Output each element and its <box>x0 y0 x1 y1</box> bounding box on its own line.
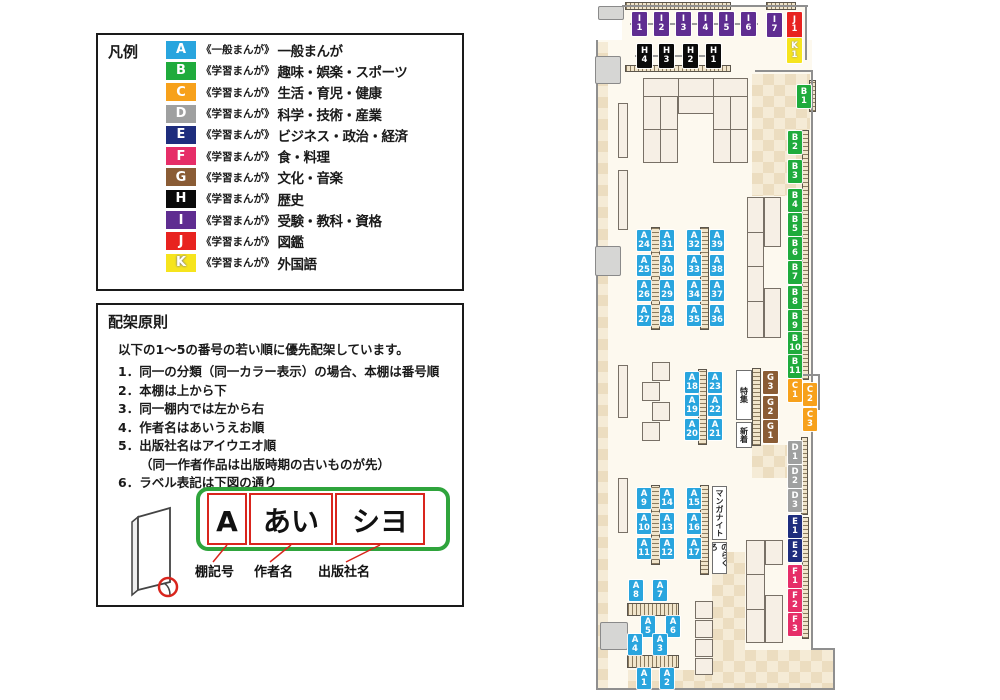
shelf-label-B10: B10 <box>788 332 802 355</box>
shelf-label-A6: A6 <box>666 616 680 637</box>
shelf-label-H1: H1 <box>706 44 721 68</box>
shelf-label-A14: A14 <box>660 488 674 509</box>
shelf-label-A32: A32 <box>687 230 701 251</box>
shelf-label-G3: G3 <box>763 371 778 394</box>
shelf-label-A26: A26 <box>637 280 651 301</box>
shelf-label-K1: K1 <box>787 38 802 63</box>
shelf-label-A29: A29 <box>660 280 674 301</box>
shelf-label-A35: A35 <box>687 305 701 326</box>
wall-top <box>622 5 808 7</box>
shelf-label-A31: A31 <box>660 230 674 251</box>
shelf-label-A30: A30 <box>660 255 674 276</box>
shelf-label-A11: A11 <box>637 538 651 559</box>
wall-c2-bracket-v <box>818 374 820 410</box>
shelf-label-C1: C1 <box>788 379 802 402</box>
shelf-label-A37: A37 <box>710 280 724 301</box>
shelf-label-A9: A9 <box>637 488 651 509</box>
shelf-label-I7: I7 <box>767 13 782 37</box>
shelf-strip-a7a8 <box>627 603 679 616</box>
shelf-label-A15: A15 <box>687 488 701 509</box>
shelf-label-D3: D3 <box>788 489 802 512</box>
door-upper-left <box>595 56 621 84</box>
shelf-label-H2: H2 <box>683 44 698 68</box>
shelf-label-A33: A33 <box>687 255 701 276</box>
shelf-strip-a18 <box>698 369 707 445</box>
map-annotation-新着: 新着 <box>736 422 752 448</box>
wall-bottom-right-h <box>811 648 835 650</box>
shelf-strip-a24 <box>651 227 660 330</box>
shelf-label-B2: B2 <box>788 131 802 154</box>
shelf-label-G2: G2 <box>763 396 778 419</box>
shelf-label-A18: A18 <box>685 372 699 393</box>
wall-c2-bracket-h <box>800 374 820 376</box>
shelf-label-I6: I6 <box>741 12 756 36</box>
shelf-label-A1: A1 <box>637 668 651 689</box>
shelf-label-I4: I4 <box>698 12 713 36</box>
shelf-label-A12: A12 <box>660 538 674 559</box>
shelf-label-F2: F2 <box>788 589 802 612</box>
shelf-label-A13: A13 <box>660 513 674 534</box>
shelf-label-B5: B5 <box>788 213 802 236</box>
shelf-label-I5: I5 <box>719 12 734 36</box>
shelf-label-B9: B9 <box>788 310 802 333</box>
shelf-label-A22: A22 <box>708 395 722 416</box>
shelf-label-D1: D1 <box>788 441 802 464</box>
shelf-label-A27: A27 <box>637 305 651 326</box>
shelf-label-B1: B1 <box>797 85 811 108</box>
shelf-label-F3: F3 <box>788 613 802 636</box>
shelf-label-A19: A19 <box>685 395 699 416</box>
wall-shelf-strip-d <box>801 437 808 515</box>
shelf-label-A3: A3 <box>653 634 667 655</box>
walkway-left <box>598 42 608 688</box>
shelf-label-A24: A24 <box>637 230 651 251</box>
shelf-label-A8: A8 <box>629 580 643 601</box>
wall-right <box>811 70 813 650</box>
shelf-label-I3: I3 <box>676 12 691 36</box>
shelf-label-I2: I2 <box>654 12 669 36</box>
shelf-label-G1: G1 <box>763 420 778 443</box>
shelf-label-J1: J1 <box>787 12 802 38</box>
shelf-label-B3: B3 <box>788 160 802 183</box>
shelf-label-F1: F1 <box>788 565 802 588</box>
shelf-label-A36: A36 <box>710 305 724 326</box>
shelf-label-A16: A16 <box>687 513 701 534</box>
shelf-label-A34: A34 <box>687 280 701 301</box>
shelf-label-C3: C3 <box>803 408 817 431</box>
shelf-label-B6: B6 <box>788 237 802 260</box>
shelf-label-E1: E1 <box>788 515 802 538</box>
page: 凡例 A《一般まんが》一般まんがB《学習まんが》趣味・娯楽・スポーツC《学習まん… <box>0 0 1000 700</box>
shelf-label-A28: A28 <box>660 305 674 326</box>
wall-shelf-strip-ef <box>802 517 809 639</box>
shelf-label-A4: A4 <box>628 634 642 655</box>
door-middle-left <box>595 246 621 276</box>
wall-top-right-v <box>805 7 807 60</box>
shelf-label-E2: E2 <box>788 539 802 562</box>
map-annotation-マンガナイト: マンガナイト <box>712 486 727 540</box>
wall-bottom-right-v <box>833 648 835 690</box>
wall-step <box>755 70 813 72</box>
shelf-strip-a32 <box>700 227 709 330</box>
shelf-label-A20: A20 <box>685 419 699 440</box>
shelf-strip-a3a4 <box>627 655 679 668</box>
shelf-label-A23: A23 <box>708 372 722 393</box>
shelf-label-A25: A25 <box>637 255 651 276</box>
shelf-label-B11: B11 <box>788 355 802 378</box>
shelf-label-A10: A10 <box>637 513 651 534</box>
wall-bottom <box>597 688 835 690</box>
shelf-label-B4: B4 <box>788 189 802 212</box>
floor-map: I1I2I3I4I5I6I7J1K1H4H3H2H1B1B2B3B4B5B6B7… <box>0 0 1000 700</box>
shelf-label-A21: A21 <box>708 419 722 440</box>
shelf-strip-a9 <box>651 485 660 565</box>
shelf-label-H4: H4 <box>637 44 652 68</box>
shelf-label-A17: A17 <box>687 538 701 559</box>
shelf-label-A38: A38 <box>710 255 724 276</box>
door-lower-left <box>600 622 628 650</box>
rail-i-row <box>630 23 758 25</box>
shelf-strip-g <box>752 368 761 446</box>
shelf-label-I1: I1 <box>632 12 647 36</box>
shelf-label-D2: D2 <box>788 465 802 488</box>
shelf-label-B8: B8 <box>788 286 802 309</box>
shelf-label-A2: A2 <box>660 668 674 689</box>
shelf-label-B7: B7 <box>788 261 802 284</box>
shelf-strip-a15 <box>700 485 709 575</box>
shelf-label-A39: A39 <box>710 230 724 251</box>
map-annotation-のらくろ: のらくろ <box>712 542 727 574</box>
walkway-bottom-right <box>712 650 833 688</box>
door-top <box>598 6 624 20</box>
shelf-label-C2: C2 <box>803 383 817 406</box>
shelf-label-A7: A7 <box>653 580 667 601</box>
wall-left <box>596 40 598 690</box>
wall-shelf-strip-b <box>802 130 809 380</box>
shelf-label-H3: H3 <box>659 44 674 68</box>
map-annotation-特集: 特集 <box>736 370 752 420</box>
